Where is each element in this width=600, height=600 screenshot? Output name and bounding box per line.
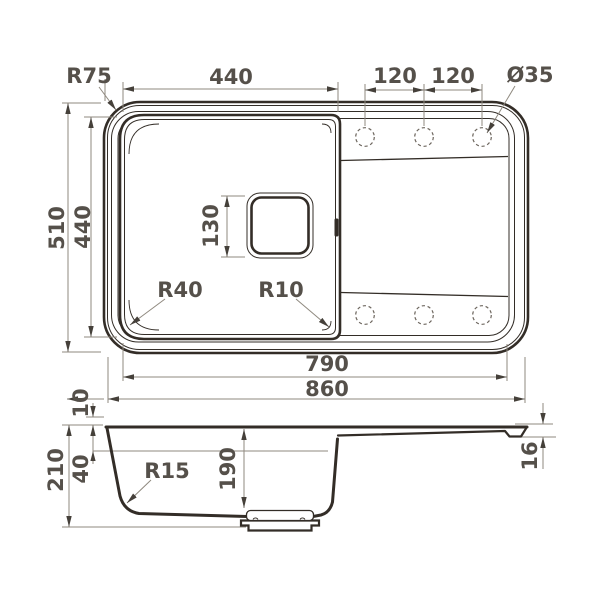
dim-bowl-depth-label: 190 [216,447,240,491]
dim-rim-height-label: 10 [69,388,93,417]
dim-outer-radius-label: R75 [66,64,111,88]
drainboard-upper-line [341,157,508,161]
drainboard-lower-line [341,293,508,297]
tap-hole-bottom-1 [356,306,375,325]
dim-hole-pitch-right-label: 120 [431,64,475,88]
top-view: R75 440 120 120 Ø35 510 [45,63,554,403]
dim-hole-pitch-left-label: 120 [373,64,417,88]
dim-overall-length-label: 860 [305,377,349,401]
dim-overall-depth-label: 210 [44,448,68,492]
dim-ledge-depth-label: 40 [69,454,93,483]
dim-hole-diameter-label: Ø35 [506,63,553,87]
dim-drain-size-label: 130 [199,204,223,248]
dim-bowl-width-label: 440 [209,65,253,89]
r15-leader [127,480,151,503]
dim-bottom-radius-label: R15 [144,459,189,483]
dim-overall-width-label: 510 [45,206,69,250]
dim-edge-thickness-label: 16 [518,441,542,470]
tap-hole-top-1 [356,128,375,147]
tap-hole-bottom-2 [415,306,434,325]
tap-hole-top-2 [415,128,434,147]
tap-hole-bottom-3 [473,306,492,325]
section-view: 10 40 210 190 R15 16 [44,388,556,530]
sink-technical-drawing: R75 440 120 120 Ø35 510 [0,0,600,600]
dim-bowl-height-label: 440 [71,205,95,249]
dim-bowl-radius-right-label: R10 [258,278,303,302]
dim-bowl-radius-left-label: R40 [157,278,202,302]
drawing-svg: R75 440 120 120 Ø35 510 [0,0,600,600]
r75-leader [99,87,116,110]
bowl-outline [120,115,340,339]
section-dimensions: 10 40 210 190 R15 16 [44,388,543,527]
hole-diameter-leader [487,86,515,133]
drain-fitting-flange [247,511,314,521]
section-drainboard-underside [338,429,526,437]
dim-inner-length-label: 790 [305,352,349,376]
overflow-mark [335,219,339,237]
drain-fitting-body [241,521,319,531]
